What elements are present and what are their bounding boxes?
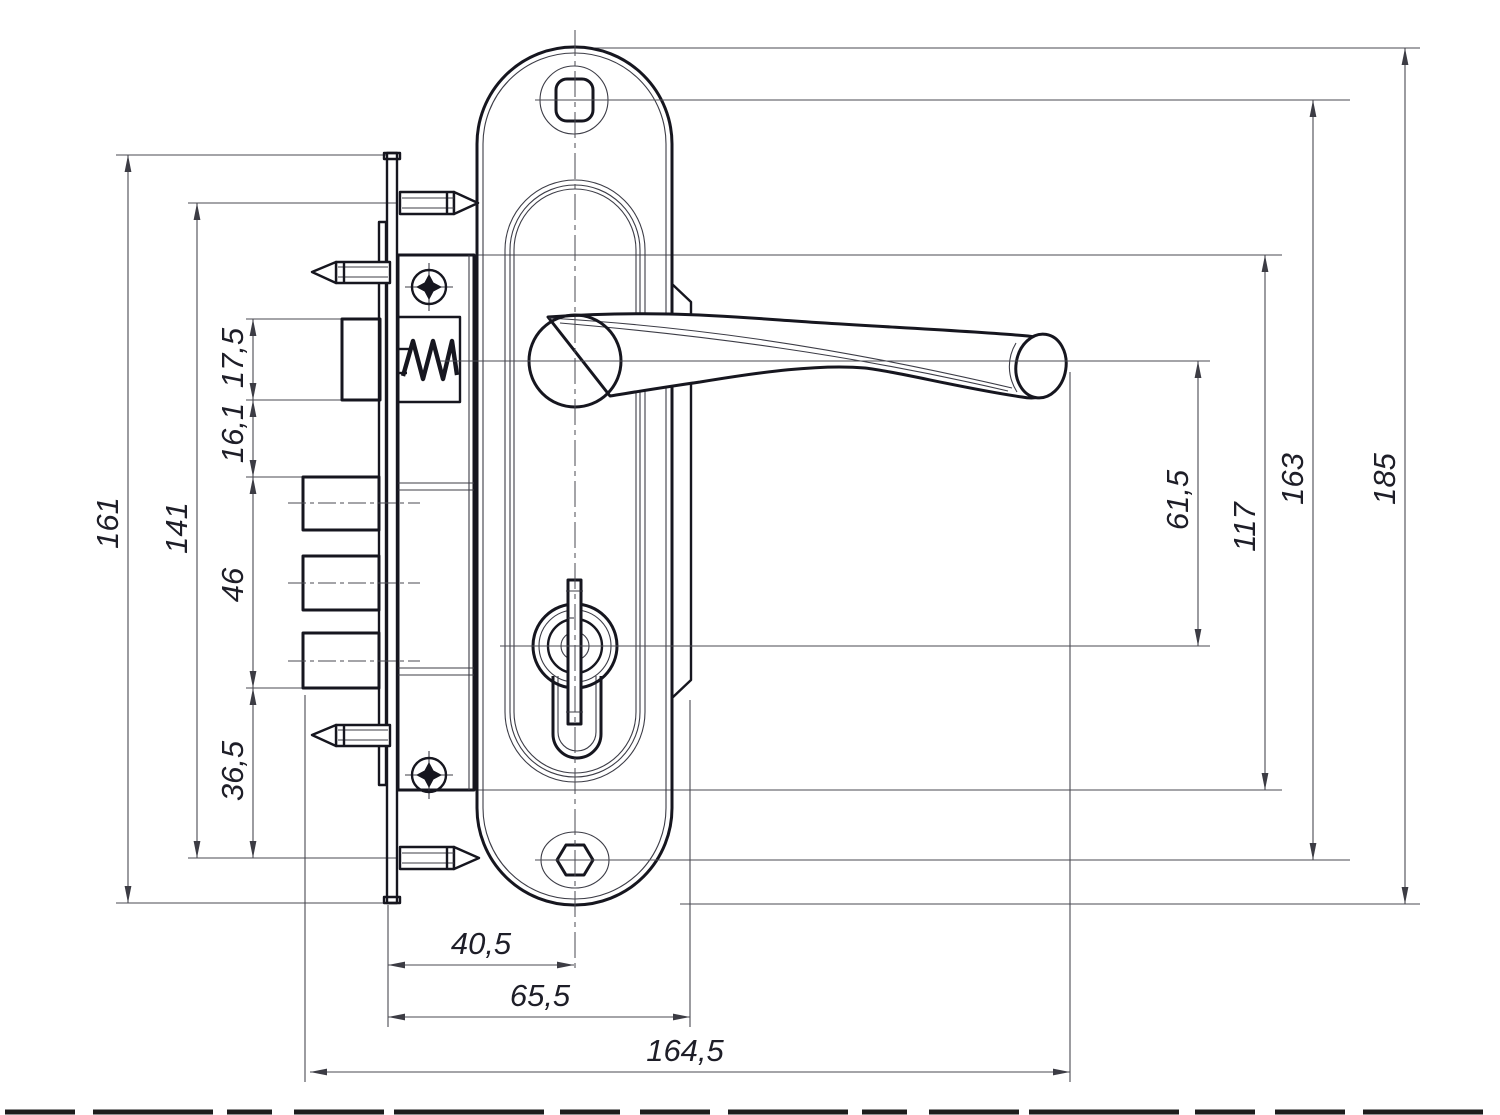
dim-plate-height: 185 [1367, 48, 1405, 904]
dim-label-141: 141 [159, 502, 194, 554]
dim-bolts-to-spike: 36,5 [215, 688, 253, 858]
dim-label-46: 46 [215, 567, 250, 602]
dim-label-161: 161 [90, 497, 125, 549]
extension-lines [116, 48, 1420, 1082]
dim-label-163: 163 [1275, 453, 1310, 505]
latch-spring [403, 341, 457, 379]
mortise-lock-body [288, 153, 479, 903]
lock-technical-drawing: 161 141 17,5 16,1 46 36,5 61,5 117 [0, 0, 1500, 1115]
dim-label-164-5: 164,5 [646, 1033, 724, 1068]
dim-faceplate-height: 161 [90, 155, 128, 903]
dim-label-40-5: 40,5 [451, 926, 512, 961]
mount-spike-upper-left [312, 262, 390, 283]
dim-case-depth: 65,5 [388, 978, 690, 1017]
mount-spike-lower-left [312, 725, 390, 746]
dim-label-117: 117 [1227, 501, 1262, 552]
dim-lock-case-height: 117 [1227, 255, 1265, 790]
dimensions: 161 141 17,5 16,1 46 36,5 61,5 117 [90, 48, 1405, 1072]
dim-overall-width: 164,5 [310, 1033, 1070, 1072]
dim-bolt-block: 46 [215, 477, 253, 688]
phillips-screw-bottom [405, 751, 453, 799]
dim-label-16-1: 16,1 [215, 403, 250, 463]
phillips-screw-top [405, 263, 453, 311]
latch-bolt [342, 319, 380, 400]
dim-backset: 40,5 [388, 926, 574, 965]
lever-handle [529, 314, 1071, 407]
dim-screw-spacing: 163 [1275, 100, 1313, 860]
dim-label-185: 185 [1367, 452, 1402, 504]
dim-label-17-5: 17,5 [215, 327, 250, 388]
dim-latch-height: 17,5 [215, 319, 253, 400]
dim-latch-to-bolts: 16,1 [215, 400, 253, 477]
dim-label-36-5: 36,5 [215, 740, 250, 801]
center-lines [440, 30, 1350, 972]
dim-label-61-5: 61,5 [1160, 469, 1195, 530]
mount-spike-bottom-right [400, 847, 479, 869]
dim-label-65-5: 65,5 [510, 978, 571, 1013]
dim-spike-spacing: 141 [159, 203, 197, 858]
lock-case [398, 255, 474, 790]
mount-spike-top-right [400, 192, 478, 214]
dim-handle-to-cylinder: 61,5 [1160, 361, 1198, 646]
